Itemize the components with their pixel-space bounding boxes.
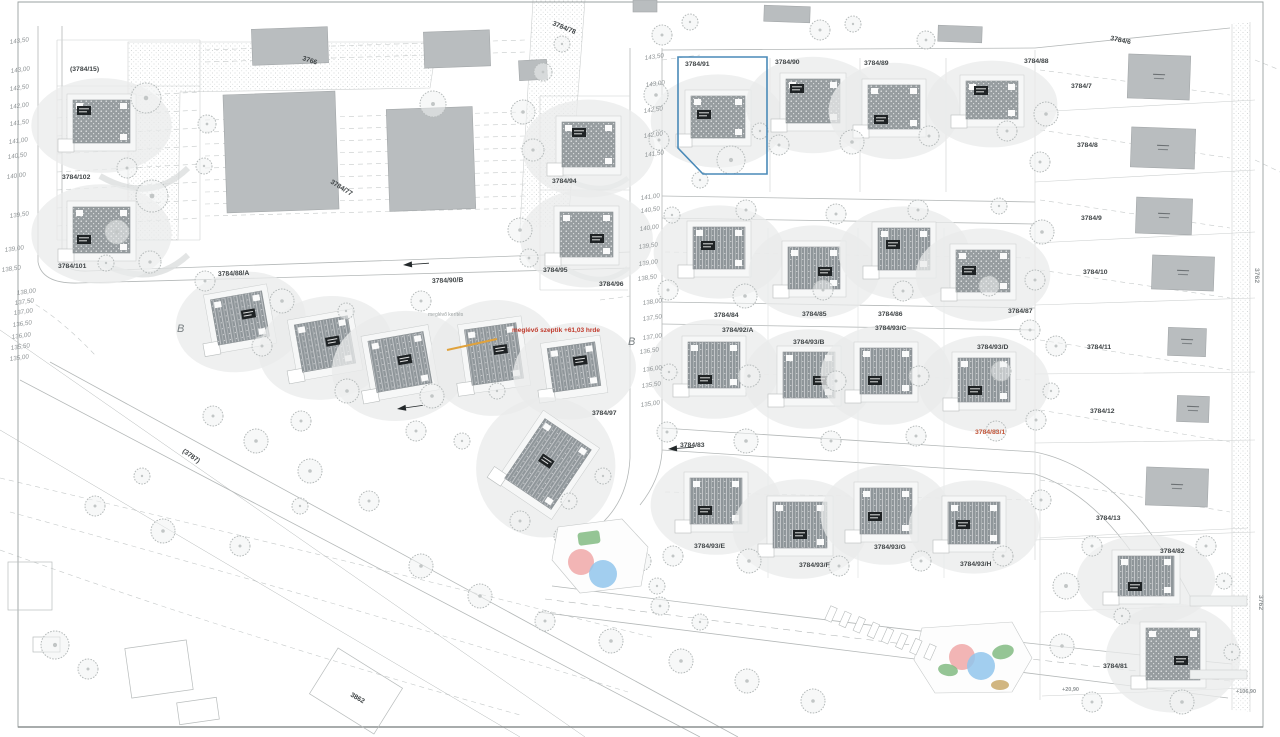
parcel-label: 3784/93/F [799,562,830,569]
house-label-chip [698,506,712,515]
elevation-label: 139,00 [638,258,659,268]
elevation-label: 139,50 [9,210,30,220]
house-label-chip [968,386,982,395]
house-label-chip [1174,656,1188,665]
parcel-label: 3784/7 [1071,83,1092,90]
house-label-chip [886,240,900,249]
house-label-chip [698,375,712,384]
play-equipment [589,560,617,588]
parcel-label: 3784/85 [802,311,827,318]
house-roof [547,342,601,392]
parcel-label: +106,90 [1236,689,1256,695]
elevation-label: 142,50 [9,83,30,93]
parcel-label: 3784/87 [1008,308,1033,315]
existing-building [1127,54,1190,100]
parcel-label: (3787) [181,448,201,465]
garage [941,288,957,301]
existing-building [223,91,339,213]
parcel-label: 3784/96 [599,281,624,288]
garage [943,398,959,411]
elevation-label: 139,00 [4,244,25,254]
parcel-label: 3784/10 [1083,269,1108,276]
parking-stall [895,633,907,650]
elevation-label: 138,00 [642,297,663,307]
section-marker-label: B [628,336,635,348]
red-annotation-note: meglévő szeptik +61,03 hrde [512,327,600,334]
parcel-label: 3762 [1253,268,1260,283]
parcel-label: 3784/91 [685,61,710,68]
elevation-label: 135,00 [640,399,661,409]
outline-building [309,648,402,734]
house-label-chip [868,376,882,385]
play-equipment [991,680,1009,690]
parcel-label: 3784/83 [680,442,705,449]
garage [678,265,694,278]
parking-stall [881,627,893,644]
parcel-label: 3784/88 [1024,58,1049,65]
house-label-chip [874,115,888,124]
elevation-label: 138,50 [637,273,658,283]
house-label-chip [974,86,988,95]
parcel-label: 3862 [349,692,366,706]
existing-building [938,25,983,43]
parcel-label: 3784/9 [1081,215,1102,222]
garage [768,394,784,407]
garage [1131,676,1147,689]
existing-building [764,5,811,23]
parcel-label: 3784/89 [864,60,889,67]
parcel-label: 3784/84 [714,312,739,319]
house-label-chip [1128,582,1142,591]
elevation-label: 137,50 [642,313,663,323]
driveway-strip [1190,670,1247,679]
elevation-label: 137,00 [642,332,663,342]
existing-building [633,0,657,12]
existing-building [423,30,490,68]
play-equipment [967,652,995,680]
existing-building [386,107,476,212]
elevation-label: 141,50 [9,118,30,128]
garage [545,253,561,266]
parcel-label: (3784/15) [70,66,99,73]
garage [58,249,74,262]
elevation-label: 135,50 [10,342,31,352]
playground [552,519,648,593]
garage [845,530,861,543]
elevation-label: 141,00 [8,136,29,146]
existing-building [1177,395,1210,422]
parcel-label: 3784/82 [1160,548,1185,555]
house-label-chip [818,267,832,276]
parcel-label: 3784/95 [543,267,568,274]
house-label-chip [697,110,711,119]
elevation-label: 137,50 [14,297,35,307]
parcel-label: 3762 [1257,595,1264,610]
parking-stall [825,606,837,623]
fence-note: meglévő kerítés [428,312,464,318]
existing-building [1135,197,1192,235]
parcel-label: 3784/12 [1090,408,1115,415]
elevation-label: 136,00 [11,331,32,341]
house-label-chip [572,128,586,137]
parking-stall [867,622,879,639]
parcel-label: 3784/86 [878,311,903,318]
garage [933,540,949,553]
elevation-label: 137,00 [13,307,34,317]
elevation-label: 140,00 [639,223,660,233]
house-label-chip [790,84,804,93]
parcel-label: 3784/93/C [875,325,906,332]
parcel-label: 3784/8 [1077,142,1098,149]
garage [1103,592,1119,605]
elevation-label: 136,50 [12,319,33,329]
parcel-label: 3784/93/E [694,543,725,550]
parcel-label: 3784/102 [62,174,91,181]
planned-houses-layer [31,57,1240,713]
house-label-chip [956,520,970,529]
existing-building [1168,327,1207,356]
house-label-chip [868,512,882,521]
existing-building [1130,127,1195,169]
house-label-chip [590,234,604,243]
elevation-label: 142,00 [9,101,30,111]
parcel-label: 3784/101 [58,263,87,270]
garage [547,163,563,176]
driveway-strip [1190,596,1247,606]
parcel-label: 3784/97 [592,410,617,417]
garage [673,384,689,397]
parcel-label: 3784/93/H [960,561,991,568]
planned-house [520,190,653,288]
elevation-label: 138,00 [16,287,37,297]
parcel-label: 3784/93/D [977,344,1008,351]
garage [771,119,787,132]
garage [773,285,789,298]
parcel-label: 3784/93/G [874,544,906,551]
parcel-label: 3784/88/A [218,270,250,278]
garage [951,115,967,128]
existing-building [1145,467,1208,507]
elevation-label: 140,00 [6,171,27,181]
garage [675,520,691,533]
parcel-label: 3784/11 [1087,344,1111,351]
house-label-chip [793,530,807,539]
garage [758,544,774,557]
house-label-chip [77,235,91,244]
site-plan-canvas: (3784/15)3784/1023784/10137663784/773784… [0,0,1280,737]
house-label-chip [701,241,715,250]
elevation-label: 141,00 [640,192,661,202]
garage [58,139,74,152]
section-arrow-icon [403,260,429,268]
parcel-label: 3784/6 [1110,35,1132,46]
house-label-chip [962,266,976,275]
garage [845,390,861,403]
parcel-label: +20,90 [1062,687,1079,693]
site-plan-drawing: (3784/15)3784/1023784/10137663784/773784… [0,0,1280,737]
outline-building [125,640,193,698]
outline-building [177,697,220,724]
parking-stall [853,617,865,634]
elevation-label: 140,50 [640,205,661,215]
section-marker-label: B [177,323,184,335]
elevation-label: 143,00 [10,65,31,75]
elevation-label: 140,50 [7,151,28,161]
existing-building [1151,255,1214,291]
parcel-label: 3784/13 [1096,515,1121,522]
parcel-label: 3784/90/B [432,277,464,285]
parcel-label: 3784/94 [552,178,577,185]
parcel-label: 3784/93/B [793,339,824,346]
elevation-label: 138,50 [1,264,22,274]
parcel-label: 3784/90 [775,59,800,66]
outline-building [8,562,52,610]
garage [863,266,879,279]
parcel-label: 3784/92/A [722,327,753,334]
planned-house [927,61,1058,148]
elevation-label: 135,00 [9,353,30,363]
parking-stall [839,611,851,628]
elevation-label: 143,50 [9,36,30,46]
parcel-label: 3784/83/1 [975,429,1005,436]
parcel-label: 3784/81 [1103,663,1128,670]
house-label-chip [77,106,91,115]
